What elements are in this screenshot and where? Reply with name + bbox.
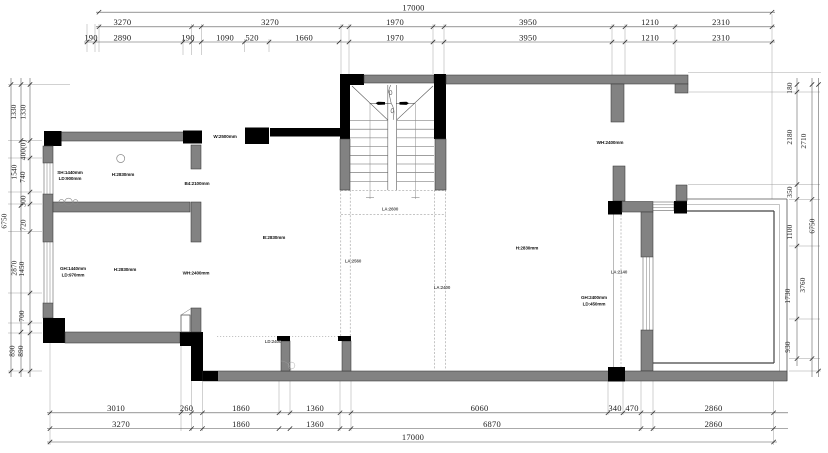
svg-text:3270: 3270: [112, 419, 130, 429]
svg-text:190: 190: [84, 32, 97, 42]
svg-text:1660: 1660: [295, 32, 313, 42]
svg-text:WH:2400mm: WH:2400mm: [183, 270, 210, 275]
svg-text:520: 520: [245, 32, 258, 42]
svg-text:3010: 3010: [107, 403, 125, 413]
svg-text:LA:2400: LA:2400: [434, 285, 451, 290]
svg-text:2710: 2710: [800, 133, 808, 148]
svg-text:180: 180: [786, 82, 794, 94]
svg-text:470: 470: [625, 403, 638, 413]
svg-text:LD:450mm: LD:450mm: [583, 301, 606, 306]
svg-text:W:2500mm: W:2500mm: [213, 134, 236, 139]
svg-text:H:2830mm: H:2830mm: [516, 245, 538, 250]
svg-text:340: 340: [608, 403, 621, 413]
svg-text:H:2830mm: H:2830mm: [114, 267, 136, 272]
svg-text:890: 890: [17, 345, 25, 357]
svg-text:GH:1440mm: GH:1440mm: [60, 266, 86, 271]
svg-text:3760: 3760: [799, 277, 807, 292]
svg-text:1330: 1330: [20, 104, 28, 119]
svg-text:2860: 2860: [705, 403, 723, 413]
svg-text:B:2830mm: B:2830mm: [263, 235, 285, 240]
svg-text:1360: 1360: [306, 419, 324, 429]
svg-text:3270: 3270: [113, 17, 131, 27]
svg-text:1970: 1970: [386, 32, 404, 42]
svg-text:1730: 1730: [784, 288, 792, 303]
svg-text:1090: 1090: [216, 32, 234, 42]
svg-text:1970: 1970: [386, 17, 404, 27]
svg-text:LA:2600: LA:2600: [382, 206, 399, 211]
svg-text:2860: 2860: [705, 419, 723, 429]
svg-text:1360: 1360: [306, 403, 324, 413]
svg-text:GH:2400mm: GH:2400mm: [581, 295, 607, 300]
svg-text:930: 930: [784, 341, 792, 353]
svg-text:1860: 1860: [232, 403, 250, 413]
svg-text:3270: 3270: [261, 17, 279, 27]
svg-text:1210: 1210: [641, 17, 659, 27]
svg-text:2890: 2890: [113, 32, 131, 42]
svg-text:1540: 1540: [11, 164, 19, 179]
svg-text:260: 260: [180, 403, 193, 413]
svg-text:350: 350: [786, 186, 794, 198]
svg-text:H:2830mm: H:2830mm: [112, 172, 134, 177]
svg-text:6750: 6750: [809, 218, 817, 233]
svg-text:B4:2100mm: B4:2100mm: [185, 181, 210, 186]
svg-text:1330: 1330: [10, 104, 18, 119]
svg-text:1210: 1210: [641, 32, 659, 42]
svg-text:LD:970mm: LD:970mm: [62, 272, 85, 277]
svg-text:1860: 1860: [232, 419, 250, 429]
svg-text:400(0): 400(0): [20, 139, 28, 160]
svg-text:LA:2140: LA:2140: [611, 269, 628, 274]
svg-text:LD:2400: LD:2400: [265, 339, 282, 344]
svg-text:720: 720: [20, 219, 28, 231]
svg-text:3950: 3950: [519, 32, 537, 42]
svg-text:2180: 2180: [786, 129, 794, 144]
svg-text:6870: 6870: [483, 419, 501, 429]
svg-text:LD:900mm: LD:900mm: [59, 176, 82, 181]
svg-text:6060: 6060: [471, 403, 489, 413]
svg-text:6750: 6750: [1, 213, 9, 228]
svg-text:2310: 2310: [712, 17, 730, 27]
svg-text:SH:1440mm: SH:1440mm: [57, 170, 82, 175]
svg-text:1450: 1450: [18, 261, 26, 276]
svg-text:740: 740: [19, 171, 27, 183]
svg-text:890: 890: [9, 345, 17, 357]
svg-text:LA:2560: LA:2560: [345, 258, 362, 263]
svg-text:17000: 17000: [402, 2, 424, 12]
svg-text:WH:2400mm: WH:2400mm: [597, 140, 624, 145]
svg-text:700: 700: [18, 310, 26, 322]
svg-text:190: 190: [181, 32, 194, 42]
svg-text:300: 300: [20, 195, 28, 207]
svg-text:2310: 2310: [712, 32, 730, 42]
svg-text:3950: 3950: [519, 17, 537, 27]
svg-text:17000: 17000: [402, 432, 424, 442]
